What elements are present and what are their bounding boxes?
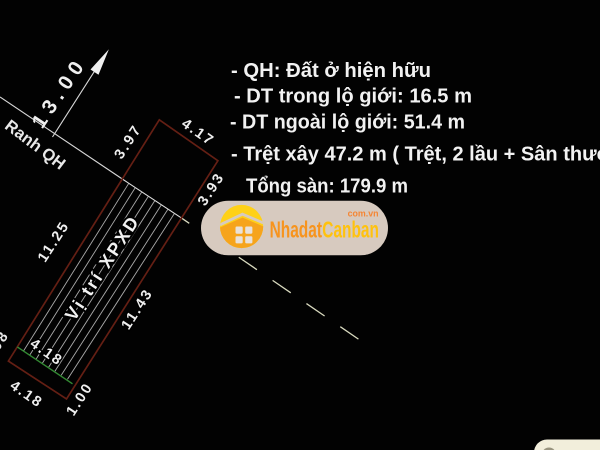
svg-text:- QH: Đất ở hiện hữu: - QH: Đất ở hiện hữu bbox=[231, 60, 431, 82]
svg-text:Nhadat: Nhadat bbox=[270, 217, 323, 243]
svg-text:- DT trong lộ giới: 16.5 m: - DT trong lộ giới: 16.5 m bbox=[234, 86, 472, 108]
svg-text:- Trệt xây 47.2 m ( Trệt, 2 lầ: - Trệt xây 47.2 m ( Trệt, 2 lầu + Sân th… bbox=[231, 144, 600, 166]
svg-text:- DT ngoài lộ giới: 51.4 m: - DT ngoài lộ giới: 51.4 m bbox=[230, 112, 465, 134]
svg-text:com.vn: com.vn bbox=[348, 209, 379, 220]
svg-text:Canban: Canban bbox=[322, 217, 379, 243]
svg-text:Tổng sàn: 179.9 m: Tổng sàn: 179.9 m bbox=[246, 176, 408, 198]
